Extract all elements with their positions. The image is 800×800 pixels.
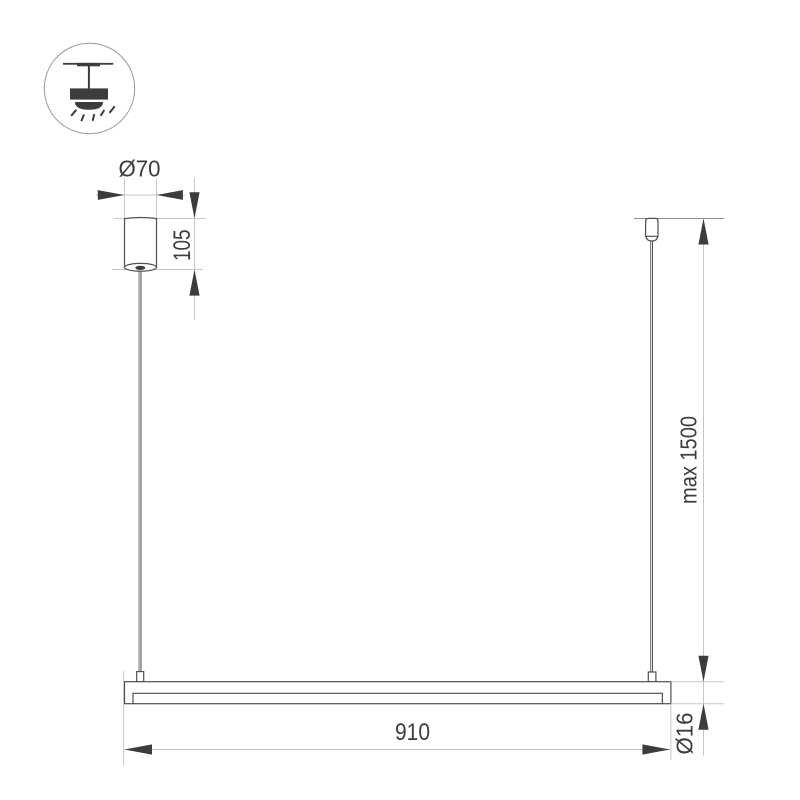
svg-text:Ø16: Ø16: [671, 713, 697, 755]
svg-text:910: 910: [395, 719, 430, 746]
svg-text:max 1500: max 1500: [676, 416, 702, 504]
svg-text:105: 105: [169, 230, 196, 261]
svg-text:Ø70: Ø70: [119, 156, 161, 182]
